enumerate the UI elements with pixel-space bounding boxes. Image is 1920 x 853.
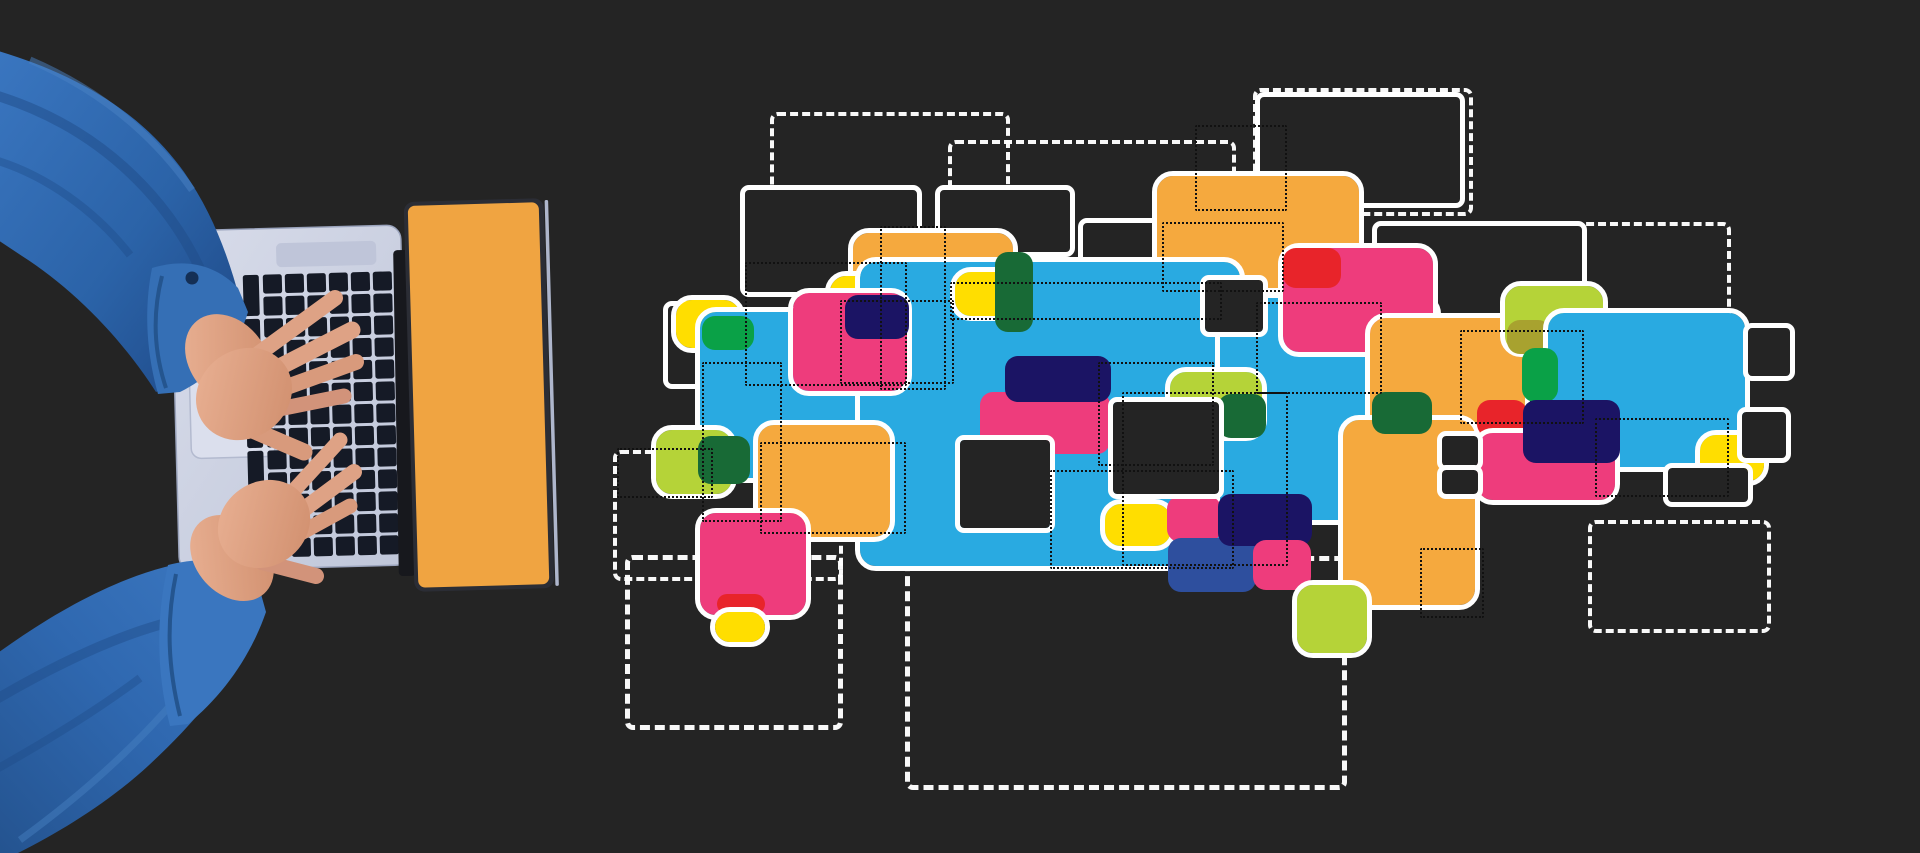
black-dotted-rect xyxy=(617,448,713,498)
keyboard-key xyxy=(351,272,370,291)
keyboard-key xyxy=(378,491,397,510)
keyboard-key xyxy=(329,272,348,291)
keyboard-key xyxy=(377,425,396,444)
black-dotted-rect xyxy=(1256,302,1382,394)
keyboard-key xyxy=(374,315,393,334)
keyboard-key xyxy=(336,536,355,555)
speaker-grille xyxy=(276,241,377,268)
navy-chip-d xyxy=(1005,356,1111,402)
keyboard-key xyxy=(285,296,304,315)
keyboard-key xyxy=(314,537,333,556)
keyboard-key xyxy=(373,293,392,312)
yellow-chip-e xyxy=(715,612,765,642)
window-center-left xyxy=(960,440,1050,528)
keyboard-key xyxy=(380,535,399,554)
red-chip-c xyxy=(717,594,765,614)
keyboard-key xyxy=(376,381,395,400)
black-dotted-rect xyxy=(840,300,954,384)
keyboard-key xyxy=(285,274,304,293)
laptop-screen xyxy=(404,198,559,592)
keyboard-key xyxy=(356,492,375,511)
window-far-right-1 xyxy=(1748,328,1790,376)
red-chip-a xyxy=(1283,248,1341,288)
black-dotted-rect xyxy=(1162,222,1284,292)
window-far-right-2 xyxy=(1742,412,1786,458)
screen-panel xyxy=(408,202,550,588)
dashed-rect-bottom-center xyxy=(905,556,1347,790)
keyboard-key xyxy=(375,359,394,378)
keyboard-key xyxy=(267,450,286,469)
keyboard-key xyxy=(379,513,398,532)
keyboard-key xyxy=(376,403,395,422)
keyboard-key xyxy=(354,404,373,423)
sleeve-bottom xyxy=(0,560,266,853)
laptop-photo xyxy=(0,0,620,853)
keyboard-key xyxy=(373,271,392,290)
black-dotted-rect xyxy=(1420,548,1484,618)
keyboard-key xyxy=(263,274,282,293)
cuff-button xyxy=(186,272,199,285)
lime-bottom-right xyxy=(1297,585,1367,653)
keyboard-key xyxy=(374,337,393,356)
keyboard-key xyxy=(377,447,396,466)
black-dotted-rect xyxy=(1460,330,1584,424)
keyboard-key xyxy=(263,296,282,315)
window-right-sm-1 xyxy=(1442,436,1478,466)
black-dotted-rect xyxy=(1050,470,1234,569)
black-dotted-rect xyxy=(1595,418,1729,497)
keyboard-key xyxy=(354,382,373,401)
dgreen-chip-d xyxy=(1372,392,1432,434)
keyboard-key xyxy=(351,294,370,313)
window-right-sm-2 xyxy=(1442,470,1478,494)
keyboard-key xyxy=(307,273,326,292)
keyboard-key xyxy=(355,426,374,445)
scene xyxy=(0,0,1920,853)
keyboard-key xyxy=(357,514,376,533)
keyboard-key xyxy=(355,448,374,467)
keyboard-key xyxy=(378,469,397,488)
black-dotted-rect xyxy=(1195,125,1287,211)
dashed-rect-bottom-right xyxy=(1588,520,1771,633)
black-dotted-rect xyxy=(702,362,782,522)
keyboard-key xyxy=(358,536,377,555)
keyboard-key xyxy=(332,404,351,423)
